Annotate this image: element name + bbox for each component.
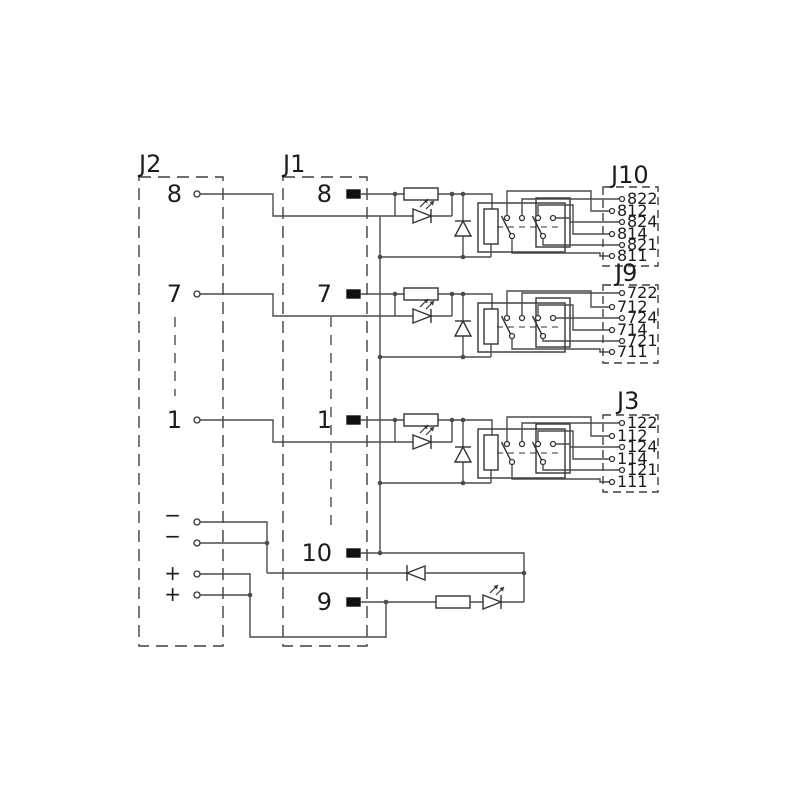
j1-pin-number: 8 [317,180,332,208]
power-resistor [436,596,470,608]
junction-dot [378,255,383,260]
contact-output-wire [538,205,610,234]
j1-pin-terminal [347,416,360,424]
contact-fixed-terminal [536,316,541,321]
output-pin-terminal [620,421,625,426]
junction-dot [522,571,527,576]
junction-dot [378,355,383,360]
contact-common-terminal [510,460,515,465]
resistor [404,414,438,426]
junction-dot [378,551,383,556]
j2-pin-terminal [194,291,200,297]
contact-output-wire [543,339,620,342]
flyback-diode-icon [455,321,471,336]
connector-j2-label: J2 [137,150,161,178]
flyback-diode-icon [455,221,471,236]
junction-dot [461,355,466,360]
junction-dot [450,192,455,197]
output-pin-terminal [610,350,615,355]
power-diode-icon [407,566,425,580]
relay-coil [484,435,498,470]
contact-fixed-terminal [520,316,525,321]
j2-plus-label: + [164,582,181,606]
contact-fixed-terminal [536,216,541,221]
j2-pin-terminal [194,191,200,197]
pin10-wire [360,553,524,602]
j2-minus-label: − [164,524,181,548]
junction-dot [461,418,466,423]
contact-output-wire [543,465,620,471]
j2-input-wire [200,294,395,316]
flyback-diode-icon [455,447,471,462]
output-pin-label: 711 [617,342,648,361]
j2-pin-number: 8 [167,180,182,208]
junction-dot [461,481,466,486]
j1-pin-terminal [347,190,360,198]
j2-input-wire [200,420,395,442]
output-pin-terminal [610,480,615,485]
minus-wire [200,522,267,573]
output-pin-terminal [610,328,615,333]
contact-fixed-terminal [505,216,510,221]
j1-pin-number: 10 [301,539,332,567]
contact-common-terminal [541,460,546,465]
relay-schematic-canvas: 8228128248148218117227127247147217111221… [0,0,800,800]
contact-common-terminal [541,334,546,339]
junction-dot [393,192,398,197]
j1-pin-terminal [347,549,360,557]
junction-dot [461,192,466,197]
status-led-icon [413,309,431,323]
junction-dot [450,418,455,423]
output-pin-terminal [610,232,615,237]
output-connector-label: J10 [609,161,649,189]
connector-j1-label: J1 [281,150,305,178]
junction-dot [461,292,466,297]
relay-coil [484,209,498,244]
j2-pin-number: 7 [167,280,182,308]
junction-dot [378,481,383,486]
j1-pin-terminal [347,598,360,606]
contact-fixed-terminal [551,316,556,321]
junction-dot [393,418,398,423]
output-pin-terminal [620,291,625,296]
output-pin-terminal [610,434,615,439]
relay-coil [484,309,498,344]
status-led-icon [413,435,431,449]
resistor [404,188,438,200]
contact-fixed-terminal [551,216,556,221]
junction-dot [393,292,398,297]
junction-dot [265,541,270,546]
power-led-icon [483,595,501,609]
j2-pin-terminal [194,540,200,546]
j2-pin-number: 1 [167,406,182,434]
output-pin-terminal [610,254,615,259]
j2-pin-terminal [194,571,200,577]
contact-fixed-terminal [505,316,510,321]
contact-output-wire [543,239,620,246]
schematic-page: 8228128248148218117227127247147217111221… [0,0,800,800]
contact-fixed-terminal [551,442,556,447]
output-pin-terminal [610,457,615,462]
j2-pin-terminal [194,519,200,525]
output-pin-label: 111 [617,472,648,491]
contact-common-terminal [510,334,515,339]
j2-pin-terminal [194,417,200,423]
j1-pin-number: 1 [317,406,332,434]
contact-fixed-terminal [536,442,541,447]
j1-pin-number: 7 [317,280,332,308]
contact-fixed-terminal [520,442,525,447]
output-pin-terminal [610,305,615,310]
junction-dot [248,593,253,598]
junction-dot [450,292,455,297]
contact-common-terminal [510,234,515,239]
contact-output-wire [538,431,610,459]
output-connector-label: J3 [615,387,639,415]
j1-pin-number: 9 [317,588,332,616]
resistor [404,288,438,300]
output-pin-terminal [610,209,615,214]
j2-input-wire [200,194,395,216]
contact-common-terminal [541,234,546,239]
j1-pin-terminal [347,290,360,298]
contact-fixed-terminal [505,442,510,447]
output-connector-label: J9 [613,259,637,287]
contact-fixed-terminal [520,216,525,221]
junction-dot [384,600,389,605]
junction-dot [461,255,466,260]
status-led-icon [413,209,431,223]
j2-pin-terminal [194,592,200,598]
